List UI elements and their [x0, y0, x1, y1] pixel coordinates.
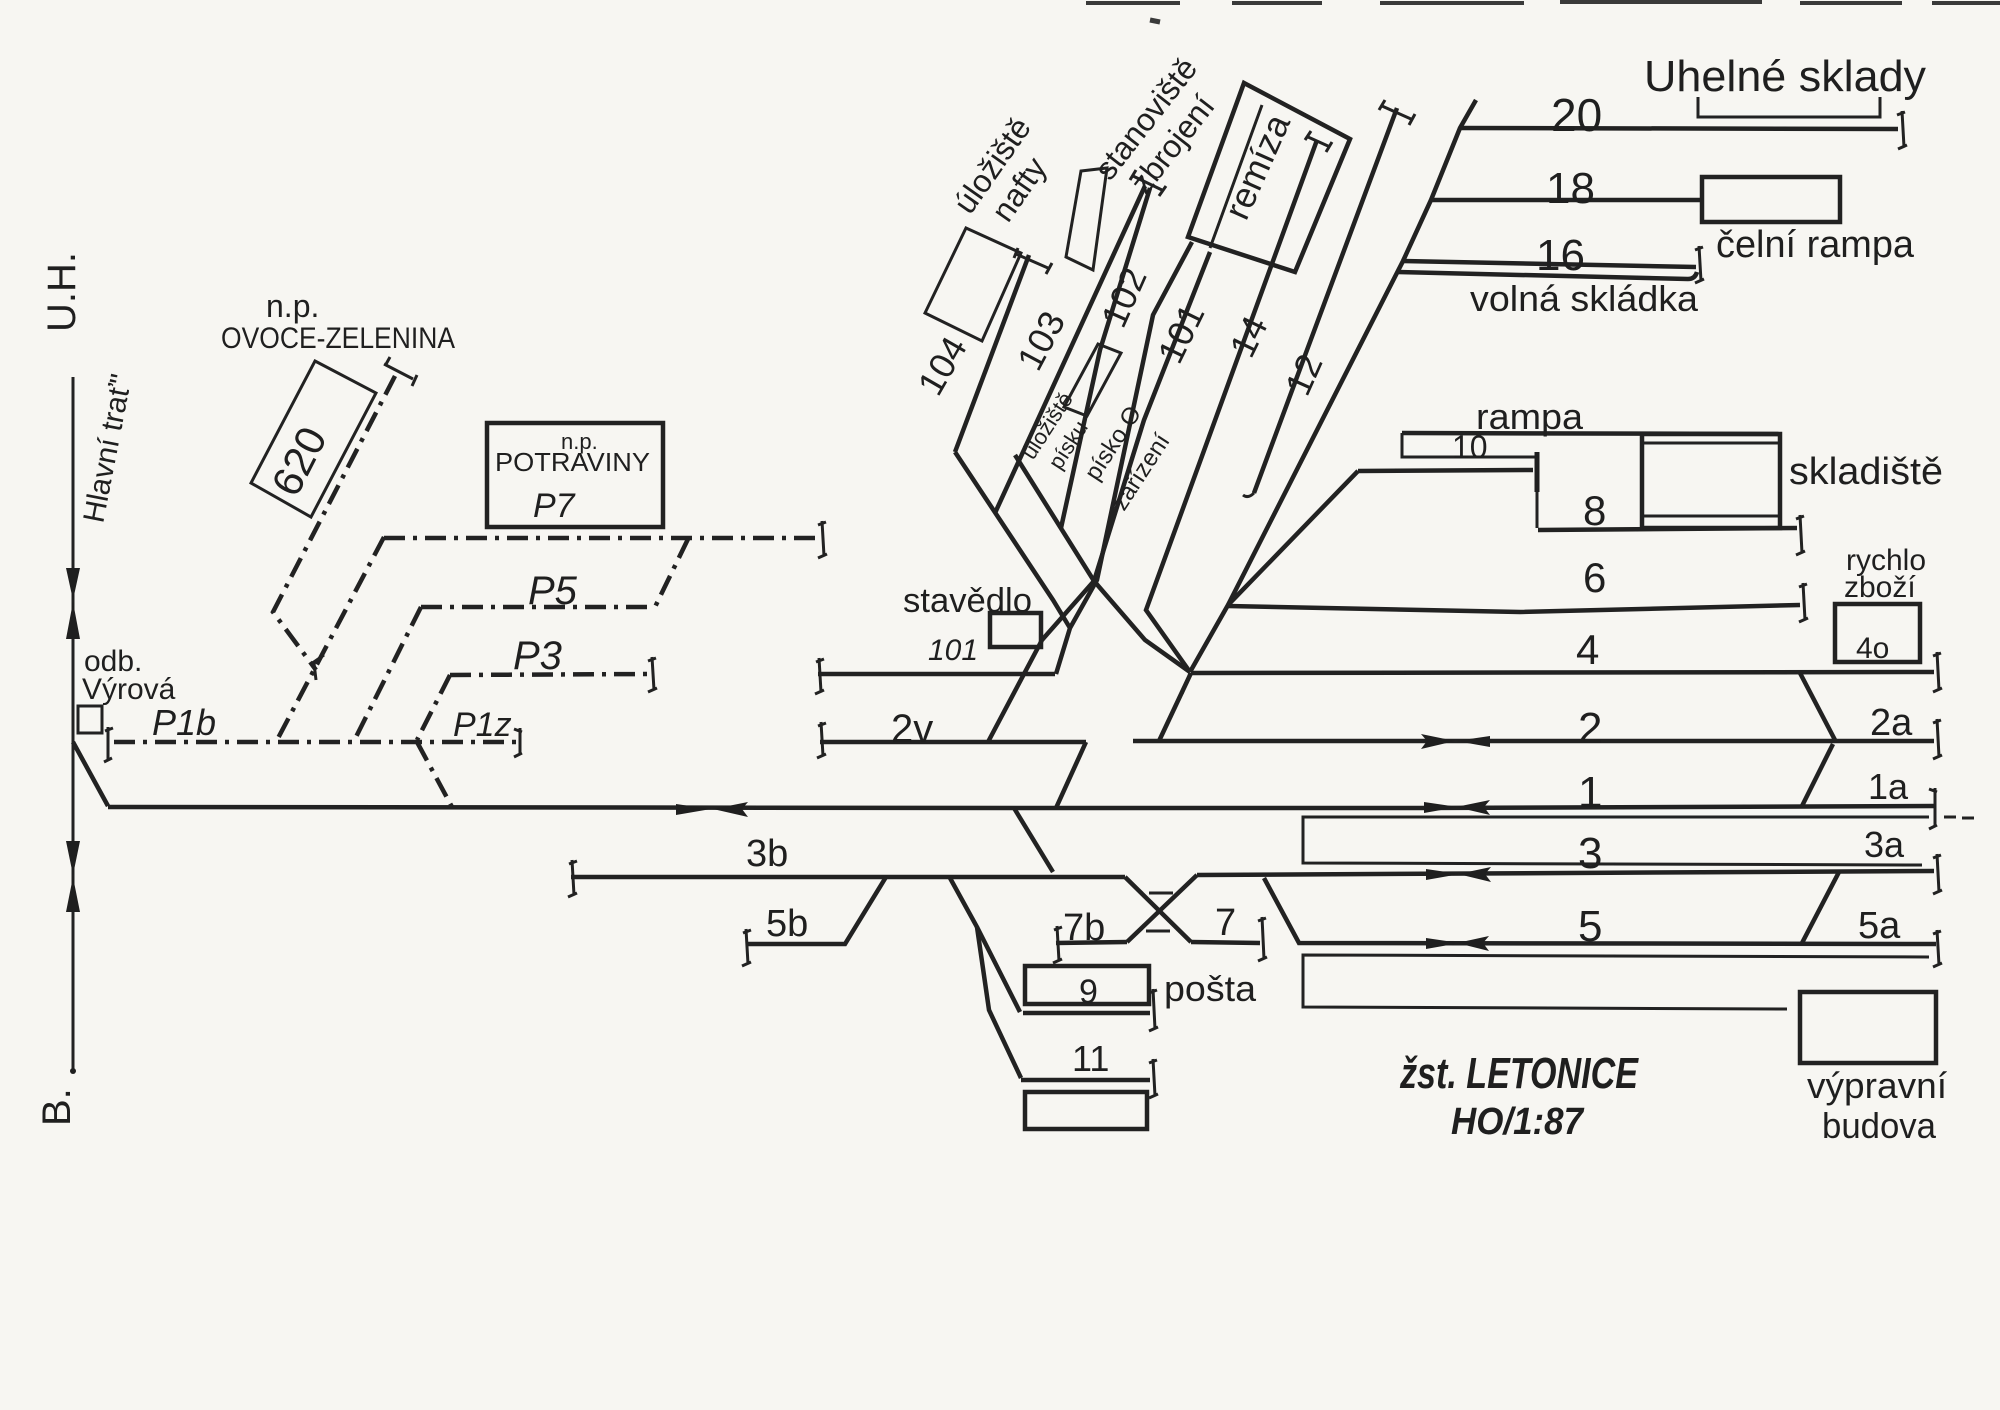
- svg-text:P3: P3: [513, 634, 562, 678]
- svg-text:U.H.: U.H.: [40, 252, 84, 332]
- svg-text:5a: 5a: [1858, 905, 1901, 947]
- svg-text:3b: 3b: [746, 833, 788, 875]
- svg-text:P7: P7: [533, 487, 576, 525]
- svg-text:9: 9: [1079, 973, 1098, 1011]
- svg-text:5: 5: [1578, 902, 1602, 951]
- svg-text:čelní rampa: čelní rampa: [1716, 224, 1915, 266]
- svg-text:4: 4: [1576, 626, 1599, 673]
- svg-text:n.p.: n.p.: [266, 288, 319, 324]
- svg-text:16: 16: [1536, 231, 1585, 280]
- svg-text:rampa: rampa: [1476, 396, 1584, 437]
- svg-text:20: 20: [1551, 89, 1602, 141]
- svg-text:4o: 4o: [1856, 632, 1889, 665]
- svg-text:11: 11: [1072, 1038, 1109, 1079]
- svg-text:3a: 3a: [1864, 824, 1905, 865]
- svg-text:volná skládka: volná skládka: [1470, 278, 1699, 319]
- svg-text:žst. LETONICE: žst. LETONICE: [1399, 1049, 1639, 1098]
- svg-text:7b: 7b: [1063, 907, 1105, 949]
- svg-text:10: 10: [1452, 429, 1488, 465]
- svg-text:OVOCE-ZELENINA: OVOCE-ZELENINA: [221, 322, 455, 355]
- svg-text:7: 7: [1215, 902, 1236, 944]
- svg-text:P1z: P1z: [453, 706, 512, 744]
- svg-text:101: 101: [928, 634, 978, 667]
- svg-text:POTRAVINY: POTRAVINY: [495, 447, 650, 477]
- svg-text:2v: 2v: [891, 707, 933, 751]
- svg-text:P5: P5: [528, 569, 578, 613]
- svg-text:stavědlo: stavědlo: [903, 582, 1032, 620]
- svg-text:1a: 1a: [1868, 766, 1909, 807]
- svg-text:8: 8: [1583, 487, 1606, 534]
- svg-text:B.: B.: [35, 1088, 79, 1126]
- svg-text:3: 3: [1578, 829, 1602, 878]
- svg-text:pošta: pošta: [1164, 968, 1257, 1009]
- svg-text:Uhelné sklady: Uhelné sklady: [1644, 52, 1926, 101]
- svg-text:6: 6: [1583, 554, 1606, 601]
- svg-text:zboží: zboží: [1844, 571, 1916, 604]
- svg-text:1: 1: [1578, 768, 1602, 817]
- svg-text:2: 2: [1578, 704, 1602, 753]
- svg-text:skladiště: skladiště: [1789, 451, 1943, 493]
- svg-text:2a: 2a: [1870, 702, 1913, 744]
- svg-text:výpravní: výpravní: [1807, 1065, 1947, 1106]
- svg-text:HO/1:87: HO/1:87: [1451, 1101, 1585, 1143]
- svg-text:budova: budova: [1822, 1105, 1937, 1146]
- svg-text:18: 18: [1546, 164, 1595, 213]
- svg-text:P1b: P1b: [152, 702, 216, 743]
- svg-text:5b: 5b: [766, 903, 808, 945]
